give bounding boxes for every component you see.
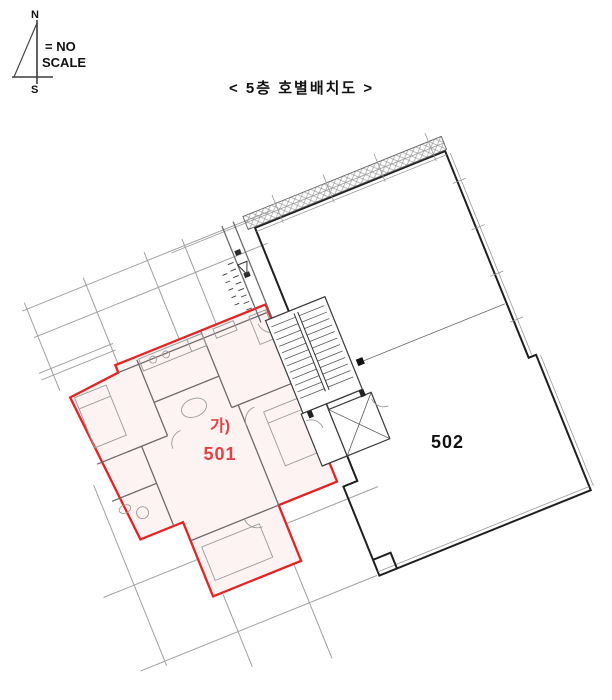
unit-501-label: 가) 501 bbox=[186, 414, 254, 468]
unit-502-label: 502 bbox=[431, 432, 464, 453]
no-scale-note-line1: = NO bbox=[45, 39, 76, 54]
no-scale-note-line2: SCALE bbox=[42, 55, 86, 70]
balcony-band bbox=[165, 128, 449, 266]
unit-501-group-tag: 가) bbox=[186, 414, 254, 440]
compass-south-label: S bbox=[31, 84, 38, 96]
floor-plan-svg bbox=[0, 0, 612, 700]
floor-plan-canvas: N = NO SCALE S < 5층 호별배치도 > 가) 501 502 bbox=[0, 0, 612, 700]
compass-north-label: N bbox=[31, 9, 39, 21]
unit-501-number: 501 bbox=[186, 440, 254, 468]
plan-rotated-group bbox=[0, 124, 612, 700]
page-title: < 5층 호별배치도 > bbox=[229, 77, 374, 98]
